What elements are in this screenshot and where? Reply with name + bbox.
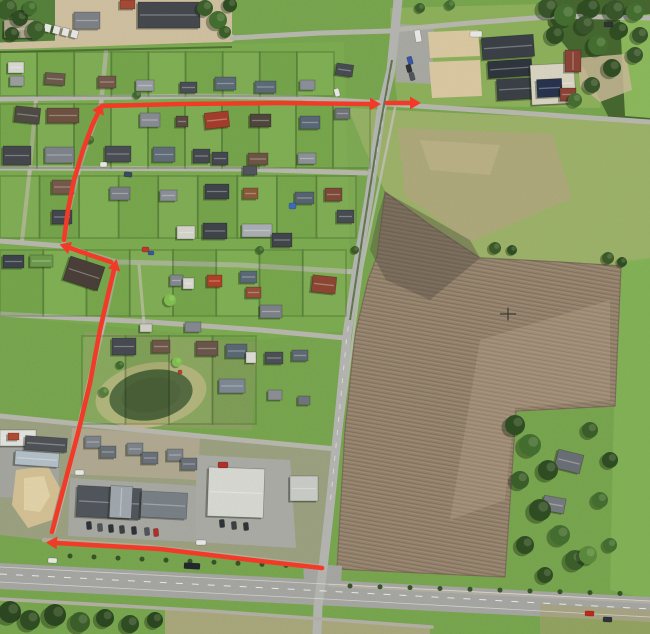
aerial-satellite-view <box>0 0 650 634</box>
grain-overlay <box>0 0 650 634</box>
aerial-map-image <box>0 0 650 634</box>
photo-texture-overlay <box>0 0 650 634</box>
route-line-leg-5-east-north-street <box>103 103 370 106</box>
